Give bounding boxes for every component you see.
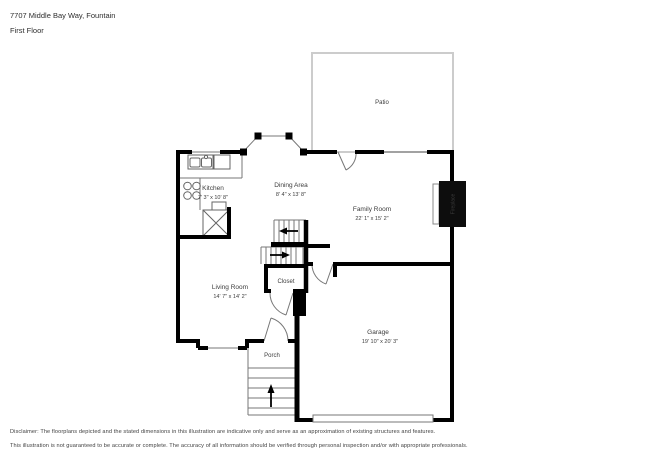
porch-arrow-up-icon bbox=[268, 384, 275, 407]
floorplan-page: 7707 Middle Bay Way, Fountain First Floo… bbox=[0, 0, 650, 460]
living-room-label: Living Room bbox=[212, 284, 248, 291]
dishwasher-icon bbox=[214, 155, 230, 169]
stair-arrow-right-icon bbox=[270, 252, 290, 259]
garage-label: Garage bbox=[367, 329, 389, 336]
plan-floor-name: First Floor bbox=[10, 23, 115, 38]
kitchen-label: Kitchen bbox=[202, 185, 224, 192]
fireplace: Fireplace bbox=[433, 181, 466, 227]
family-room-dims: 22' 1" x 15' 2" bbox=[355, 216, 388, 222]
pantry-x-icon bbox=[203, 202, 229, 236]
garage-door bbox=[313, 415, 433, 422]
patio-label: Patio bbox=[375, 100, 389, 106]
floorplan-drawing: Fireplace Patio Kitchen 7' 3" x 10' 8" D… bbox=[0, 0, 650, 460]
plan-address: 7707 Middle Bay Way, Fountain bbox=[10, 8, 115, 23]
disclaimer: Disclaimer: The floorplans depicted and … bbox=[10, 426, 468, 453]
dining-area-label: Dining Area bbox=[274, 182, 308, 189]
sink-icon bbox=[188, 155, 213, 169]
plan-header: 7707 Middle Bay Way, Fountain First Floo… bbox=[10, 8, 115, 38]
dining-area-dims: 8' 4" x 13' 8" bbox=[276, 192, 306, 198]
family-room-label: Family Room bbox=[353, 206, 391, 213]
disclaimer-line-2: This illustration is not guaranteed to b… bbox=[10, 440, 468, 454]
kitchen-dims: 7' 3" x 10' 8" bbox=[198, 195, 228, 201]
garage-dims: 19' 10" x 20' 3" bbox=[362, 339, 398, 345]
porch-label: Porch bbox=[264, 353, 280, 359]
living-room-dims: 14' 7" x 14' 2" bbox=[213, 294, 246, 300]
closet-label: Closet bbox=[277, 279, 294, 285]
disclaimer-line-1: Disclaimer: The floorplans depicted and … bbox=[10, 426, 468, 440]
fireplace-label: Fireplace bbox=[451, 194, 457, 215]
